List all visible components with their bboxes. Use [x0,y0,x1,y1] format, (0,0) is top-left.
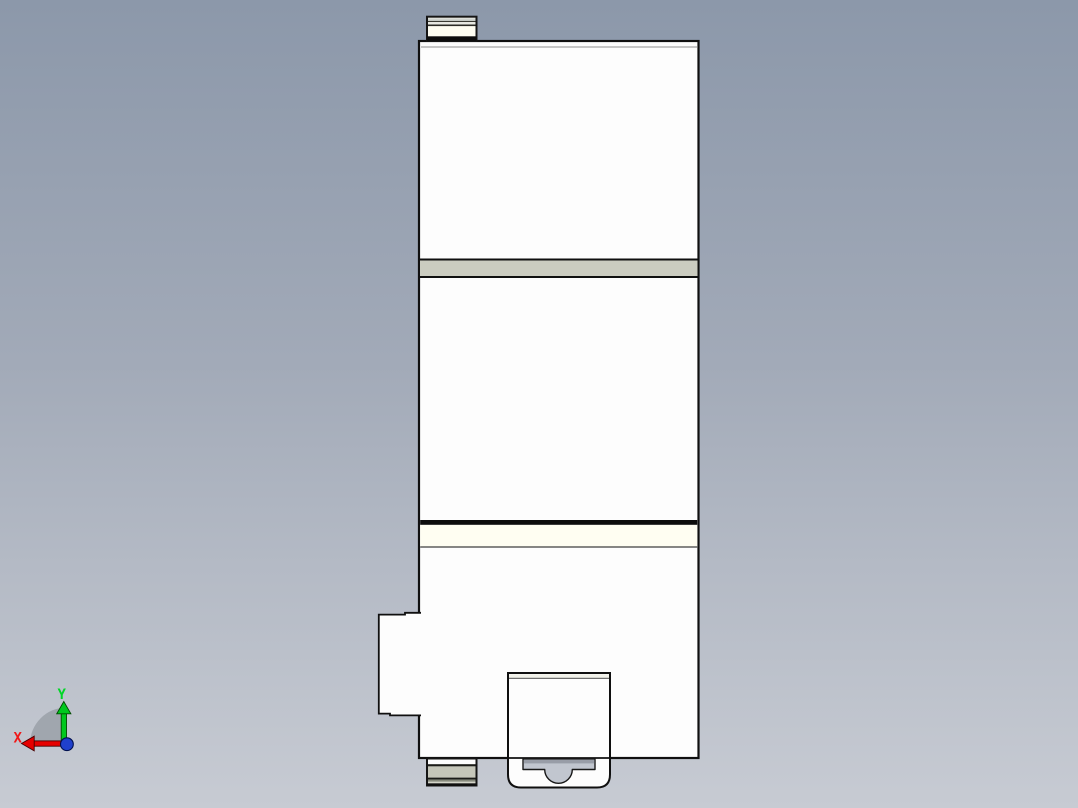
bottom-terminal-tab [427,759,477,787]
housing-body [419,41,699,758]
label-band-top-rule [420,520,697,525]
top-tab-stripe-lighter [428,22,476,24]
top-tab-base [427,36,477,41]
y-axis-arrowhead [57,702,71,714]
y-axis-label: Y [58,687,67,703]
din-clip-cutout-shadow [524,760,594,764]
top-tab-stripe-light [428,18,476,21]
side-connector [379,613,421,716]
bottom-tab-line2 [428,778,476,780]
device-part [379,17,699,788]
model-drawing: X Y [0,0,1078,808]
bottom-tab-base [427,783,477,786]
bottom-tab-light-stripe [428,782,476,784]
mid-band [419,260,699,278]
x-axis-arrowhead [22,736,35,751]
x-axis-label: X [14,731,23,747]
top-terminal-tab [427,17,477,41]
label-band [420,520,697,547]
bottom-connector [507,673,611,788]
origin-z-dot [61,738,74,751]
connector-top-strip [509,674,609,678]
top-tab-stripe-dark1 [428,21,476,22]
bottom-tab-band [428,766,476,777]
bottom-tab-line1 [428,764,476,766]
bottom-tab-olive-stripe [428,780,476,782]
cad-viewport[interactable]: X Y [0,0,1078,808]
top-tab-stripe-dark2 [428,25,476,27]
orientation-triad: X Y [14,687,74,751]
label-band-fill [420,525,697,547]
